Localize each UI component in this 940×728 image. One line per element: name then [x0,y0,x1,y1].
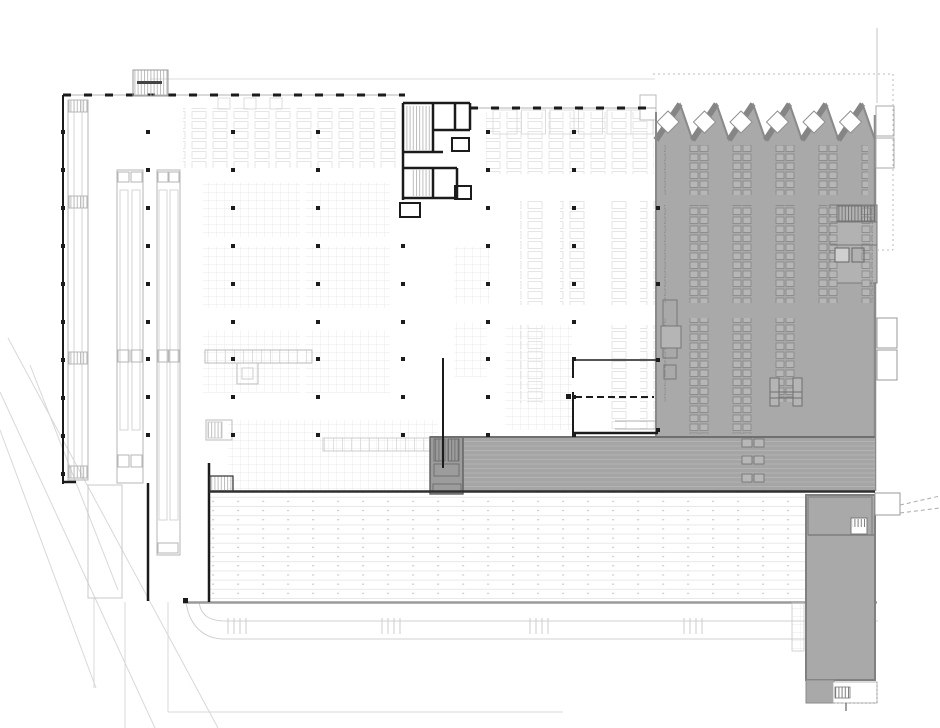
facade-column [61,244,65,248]
structural-column [572,244,576,248]
site-road-line [0,392,155,728]
structural-column [572,168,576,172]
hall-end-box [158,543,178,553]
structural-column [146,395,150,399]
storage-rack-zone [305,330,390,393]
structural-column [316,395,320,399]
structural-column [316,244,320,248]
edge-column [656,358,660,362]
structural-column [572,206,576,210]
stair-landing-bar [137,81,162,84]
storage-rack-zone [203,182,300,237]
hall-end-box [118,455,129,467]
ramp-dashed-line [900,508,940,513]
elevator [835,248,849,262]
structural-column [572,357,576,361]
exit-stair [835,687,850,698]
band-pallet [742,474,752,482]
structural-column [572,433,576,437]
hall-lane [120,190,128,430]
edge-column [656,428,660,432]
structural-column [486,244,490,248]
hall-end-box [131,455,142,467]
structural-column [316,168,320,172]
south-hall-floor-stripes [209,492,806,602]
wall-end-block [566,394,571,399]
logistics-band-lanes [463,437,875,491]
structural-column [572,282,576,286]
structural-column [316,130,320,134]
storage-rack-zone [305,246,390,308]
structural-column [146,357,150,361]
curb-line [199,602,878,621]
structural-column [486,433,490,437]
structural-column [316,320,320,324]
stair-east-core [837,206,875,221]
edge-column [656,206,660,210]
structural-column [486,282,490,286]
structural-column [231,320,235,324]
east-dock [877,350,897,380]
storage-rack-zone [183,108,397,168]
structural-column [231,244,235,248]
structural-column [486,130,490,134]
machine-row-zone [664,145,868,195]
facade-column [61,282,65,286]
storage-rack-zone [640,200,656,305]
rack-end-unit [69,466,87,478]
facade-column [61,168,65,172]
structural-column [231,357,235,361]
core-stair [412,170,431,196]
hall-end-box [118,172,129,182]
band-pallet [754,456,764,464]
east-dock [877,318,897,348]
hall-lane [132,190,140,430]
conveyor-center [205,350,312,363]
structural-column [401,395,405,399]
structural-column [231,395,235,399]
hall-end-box [158,172,168,182]
structural-column [572,320,576,324]
hall-end-box [169,172,179,182]
storage-rack-zone [520,200,546,305]
structural-column [401,244,405,248]
structural-column [316,357,320,361]
storage-rack-zone [606,200,632,305]
storage-rack-zone [520,325,546,403]
structural-column [401,357,405,361]
structural-column [146,130,150,134]
structural-column [401,320,405,324]
storage-rack-zone [560,200,586,305]
skylight-box [270,98,282,109]
facade-column [61,396,65,400]
machine-unit-inner [208,422,222,438]
structural-column [572,130,576,134]
wall-end-block [183,598,188,603]
structural-column [316,282,320,286]
facade-column [61,434,65,438]
structural-column [231,282,235,286]
structural-column [486,168,490,172]
stair-flight [448,439,459,461]
structural-column [146,320,150,324]
edge-column [656,282,660,286]
structural-column [231,433,235,437]
storage-rack-zone [455,247,490,304]
south-hall-stair [210,476,233,491]
west-wing-rack [68,100,88,480]
core-room-small [400,203,420,217]
yard-dock-ticks [228,618,702,634]
core-stair [406,106,430,150]
structural-column [486,395,490,399]
core-room-small [452,138,469,151]
storage-rack-zone [455,322,487,377]
storage-rack-zone [486,112,560,174]
structural-column [486,320,490,324]
structural-column [316,206,320,210]
conveyor-south [792,603,804,651]
band-pallet [742,456,752,464]
hall-end-box [131,172,142,182]
band-pallet [754,439,764,447]
structural-column [486,206,490,210]
rack-mid-unit [69,352,87,364]
rack-mid-unit [69,196,87,208]
structural-column [231,130,235,134]
facade-column [61,206,65,210]
storage-rack-zone [203,246,300,308]
floor-plan-drawing [0,0,940,728]
skylight-box [218,98,230,109]
structural-column [231,206,235,210]
storage-rack-zone [606,325,630,430]
storage-rack-zone [640,325,656,430]
facade-column [61,130,65,134]
west-wing-extension [88,485,122,598]
east-dock [876,138,894,168]
hall-lane [159,190,167,520]
storage-rack-zone [228,420,438,490]
site-road-line [8,338,218,728]
tower-foot [806,680,834,703]
structural-column [146,206,150,210]
long-hall-a [117,170,143,483]
structural-column [486,357,490,361]
band-pallet [754,474,764,482]
skylight-box [244,98,256,109]
structural-column [572,395,576,399]
structural-column [316,433,320,437]
rack-end-unit [69,100,87,112]
south-east-dock [875,493,900,515]
tower-stair [852,519,866,527]
facade-column [61,358,65,362]
floor-plan-page [0,0,940,728]
structural-column [146,244,150,248]
structural-column [146,282,150,286]
structural-column [401,282,405,286]
crane-base [661,326,681,348]
facade-column [61,472,65,476]
structural-column [231,168,235,172]
storage-rack-zone [553,400,572,430]
facade-column [61,320,65,324]
machine-row-zone [686,364,760,434]
structural-column [146,168,150,172]
storage-rack-zone [553,345,572,395]
ramp-dashed-line [900,496,940,505]
band-pallet [742,439,752,447]
hall-lane [170,190,178,520]
east-dock [876,106,894,136]
structural-column [401,433,405,437]
structural-column [146,433,150,437]
